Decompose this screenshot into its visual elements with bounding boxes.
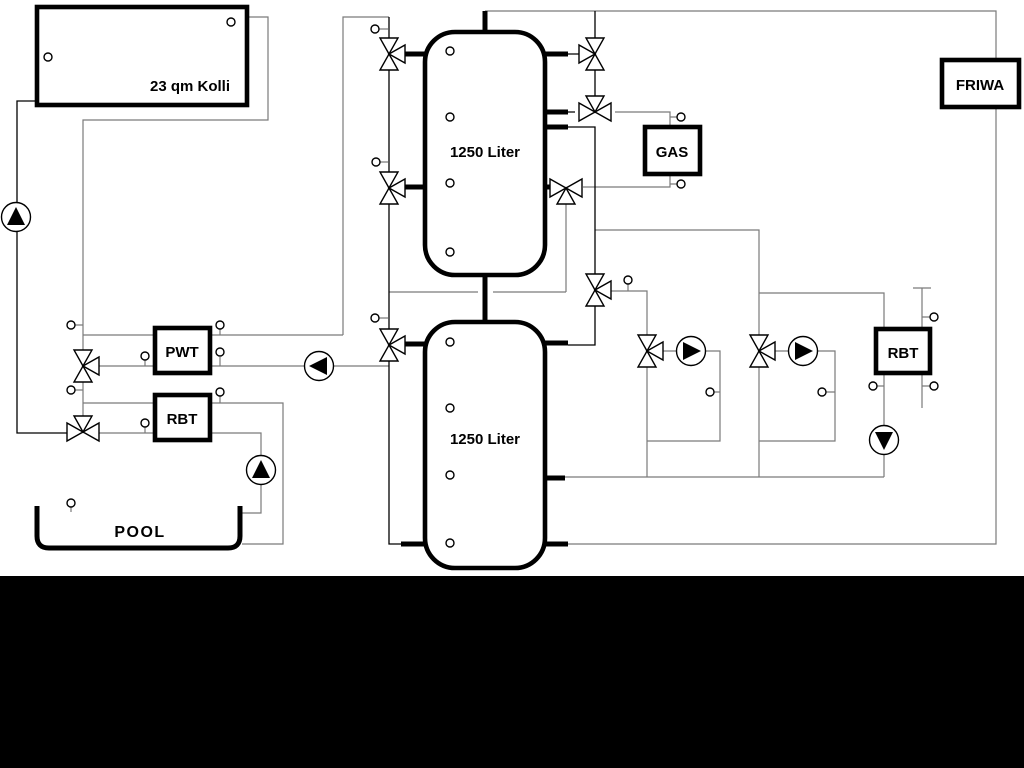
sensor-tank1-3: [446, 179, 454, 187]
hydraulic-diagram: 23 qm Kolli 1250 Liter 1250 Liter PWT RB…: [0, 0, 1024, 768]
sensor-tank2-4: [446, 539, 454, 547]
tank1-label: 1250 Liter: [450, 144, 520, 161]
solar-pump: [2, 203, 31, 232]
sensor-collector: [44, 53, 52, 61]
sensor-distribution: [624, 276, 632, 284]
sensor-gas-flow: [677, 113, 685, 121]
sensor-pwt-top-out: [216, 321, 224, 329]
sensor-tank1-1: [446, 47, 454, 55]
sensor-rbt-right: [869, 382, 877, 390]
sensor-valve-chain-top: [371, 25, 379, 33]
valve-heating-group-1: [638, 335, 663, 367]
valve-solar-pwt: [74, 350, 99, 382]
rbt-right-pump: [870, 426, 899, 455]
sensor-pwt-in: [141, 352, 149, 360]
bottom-black-band: [0, 576, 1024, 768]
rbt-left-label: RBT: [167, 411, 198, 428]
pwt-label: PWT: [165, 344, 198, 361]
collector-label: 23 qm Kolli: [150, 78, 230, 95]
sensor-collector-flow: [227, 18, 235, 26]
schematic-canvas: 23 qm Kolli 1250 Liter 1250 Liter PWT RB…: [0, 0, 1024, 768]
sensor-tank1-2: [446, 113, 454, 121]
sensor-tank1-4: [446, 248, 454, 256]
sensor-group2-return: [818, 388, 826, 396]
sensor-rbt-left-out: [216, 388, 224, 396]
sensor-tank2-1: [446, 338, 454, 346]
sensor-rbt-right-aux2: [930, 382, 938, 390]
sensor-rbt-right-aux1: [930, 313, 938, 321]
valve-tank1-left-bottom: [380, 172, 405, 204]
friwa-label: FRIWA: [956, 77, 1004, 94]
sensor-rbt-left-in: [141, 419, 149, 427]
sensor-pool: [67, 499, 75, 507]
sensor-pwt-out: [216, 348, 224, 356]
sensor-solar-line: [67, 321, 75, 329]
heating-pump-1: [677, 337, 706, 366]
valve-distribution: [586, 274, 611, 306]
rbt-right-label: RBT: [888, 345, 919, 362]
gas-label: GAS: [656, 144, 689, 161]
sensor-group1-return: [706, 388, 714, 396]
valve-tank1-right-top: [579, 38, 604, 70]
pool-label: POOL: [114, 524, 165, 541]
valve-gas-flow: [579, 96, 611, 121]
sensor-tank2-2: [446, 404, 454, 412]
valve-pool-circuit: [67, 416, 99, 441]
sensor-valve-chain-mid: [372, 158, 380, 166]
sensor-tank2-3: [446, 471, 454, 479]
pwt-charge-pump: [305, 352, 334, 381]
valve-gas-return: [550, 179, 582, 204]
tank2-label: 1250 Liter: [450, 431, 520, 448]
valve-heating-group-2: [750, 335, 775, 367]
pool-pump: [247, 456, 276, 485]
valve-tank1-left-top: [380, 38, 405, 70]
sensor-gas-return: [677, 180, 685, 188]
heating-pump-2: [789, 337, 818, 366]
sensor-pool-line: [67, 386, 75, 394]
sensor-valve-chain-low: [371, 314, 379, 322]
valve-tank2-left: [380, 329, 405, 361]
